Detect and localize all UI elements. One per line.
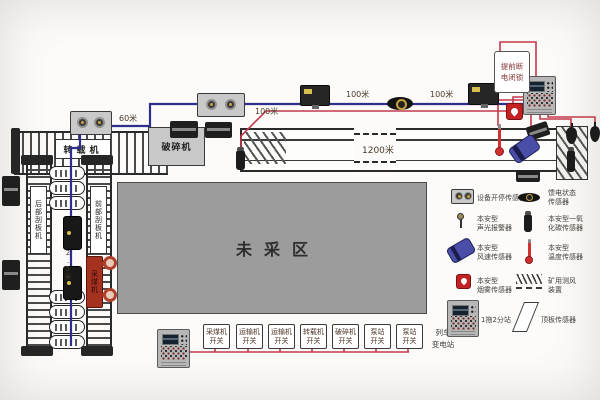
face-cable-device	[63, 216, 82, 250]
transfer-conveyor-endcap	[11, 128, 20, 174]
panel-keypad	[161, 346, 186, 360]
shearer-label: 采煤机	[90, 270, 100, 294]
legend-alarm-icon	[457, 213, 465, 229]
legend-wind-station-icon	[516, 274, 542, 284]
legend-monitor-device-icon	[451, 189, 474, 204]
legend-wind-sensor-icon	[445, 237, 476, 265]
panel-screen	[162, 334, 180, 345]
belt-drive-motor	[205, 122, 232, 138]
switch-box-pump2: 泵站开关	[396, 324, 423, 349]
belt-break-dash	[354, 161, 396, 163]
panel-vent	[527, 109, 552, 113]
distance-label: 100米	[430, 89, 453, 100]
belt-drive-motor	[170, 121, 198, 138]
shearer-drum	[103, 288, 117, 302]
device-lens	[206, 99, 217, 110]
switch-box-crusher: 破碎机开关	[332, 324, 359, 349]
belt-tail-chute	[244, 132, 286, 164]
legend-label: 1拖2分站	[481, 315, 511, 325]
panel-keypad	[527, 93, 552, 107]
hydraulic-support	[49, 196, 85, 210]
under-belt-motor	[516, 170, 540, 182]
legend-temp-sensor-icon	[524, 239, 534, 264]
device-lens	[464, 192, 472, 200]
device-lens	[77, 117, 88, 128]
unmined-area-label: 未采区	[236, 236, 320, 260]
hydraulic-support	[49, 166, 85, 180]
hydraulic-support	[49, 320, 85, 334]
legend-smoke-sensor-icon	[456, 274, 471, 289]
monitor-device	[197, 93, 245, 117]
head-frame-sensor	[567, 150, 575, 172]
belt-length-label: 1200米	[362, 143, 394, 156]
temperature-sensor	[493, 124, 505, 156]
hydraulic-support	[49, 335, 85, 349]
conveyor-drive-motor	[2, 176, 20, 206]
belt-break-dash	[354, 133, 396, 135]
panel-screen	[528, 81, 546, 92]
conveyor-endcap	[21, 346, 53, 356]
legend-substation-icon	[447, 300, 479, 337]
panel-buttons	[180, 334, 187, 344]
switch-box-pump1: 泵站开关	[364, 324, 391, 349]
legend-inline-sensor-icon	[518, 193, 540, 202]
distance-label: 100米	[346, 89, 369, 100]
switch-box-conveyor1: 运输机开关	[236, 324, 263, 349]
legend-label: 声光报警器	[477, 223, 512, 233]
support-spacing-label: 2.5米	[63, 249, 73, 280]
conveyor-endcap	[81, 155, 113, 165]
methane-sensor	[300, 85, 330, 106]
rear-scraper-label: 后部刮板机	[30, 186, 47, 254]
switch-box-transfer: 转载机开关	[300, 324, 327, 349]
sensor-display	[472, 87, 480, 92]
legend-label: 装置	[548, 285, 562, 295]
device-lens	[225, 99, 236, 110]
distance-label: 100米	[255, 106, 278, 117]
conveyor-endcap	[81, 346, 113, 356]
shearer-drum	[103, 256, 117, 270]
unmined-area: 未采区	[117, 182, 427, 314]
inline-sensor	[387, 97, 413, 110]
legend-label: 温度传感器	[548, 252, 583, 262]
switch-box-conveyor2: 运输机开关	[268, 324, 295, 349]
flame-icon	[510, 106, 520, 116]
legend-label: 传感器	[548, 197, 569, 207]
legend-roof-sensor-icon	[512, 302, 539, 332]
power-cut-note: 提前断 电闭锁	[494, 51, 530, 93]
device-lens	[455, 192, 463, 200]
face-substation-panel	[157, 329, 190, 368]
sensor-display	[304, 89, 312, 94]
belt-tail-sensor	[236, 150, 245, 170]
legend-label: 烟雾传感器	[477, 285, 512, 295]
panel-buttons	[546, 81, 553, 91]
conveyor-endcap	[21, 155, 53, 165]
panel-vent	[161, 362, 186, 366]
device-lens	[94, 117, 105, 128]
legend-label: 风速传感器	[477, 252, 512, 262]
belt-line	[242, 139, 558, 141]
mine-monitoring-diagram: 未采区 转载机 破碎机 1200米 后部刮板机 前部刮板机	[0, 0, 600, 400]
legend-co-sensor-icon	[524, 214, 532, 232]
smoke-sensor	[506, 103, 523, 120]
distance-label: 60米	[119, 113, 137, 124]
legend-wind-station-dash	[516, 284, 542, 289]
sensor-ring	[396, 99, 407, 110]
legend-label: 顶板传感器	[541, 315, 576, 325]
conveyor-drive-motor	[2, 260, 20, 290]
front-scraper-label: 前部刮板机	[90, 186, 107, 254]
roadway-sensor	[590, 126, 600, 142]
belt-line	[242, 160, 558, 162]
legend-label: 化碳传感器	[548, 223, 583, 233]
hydraulic-support	[49, 181, 85, 195]
monitor-device	[70, 111, 112, 135]
hydraulic-support	[49, 305, 85, 319]
switch-box-shearer: 采煤机开关	[203, 324, 230, 349]
